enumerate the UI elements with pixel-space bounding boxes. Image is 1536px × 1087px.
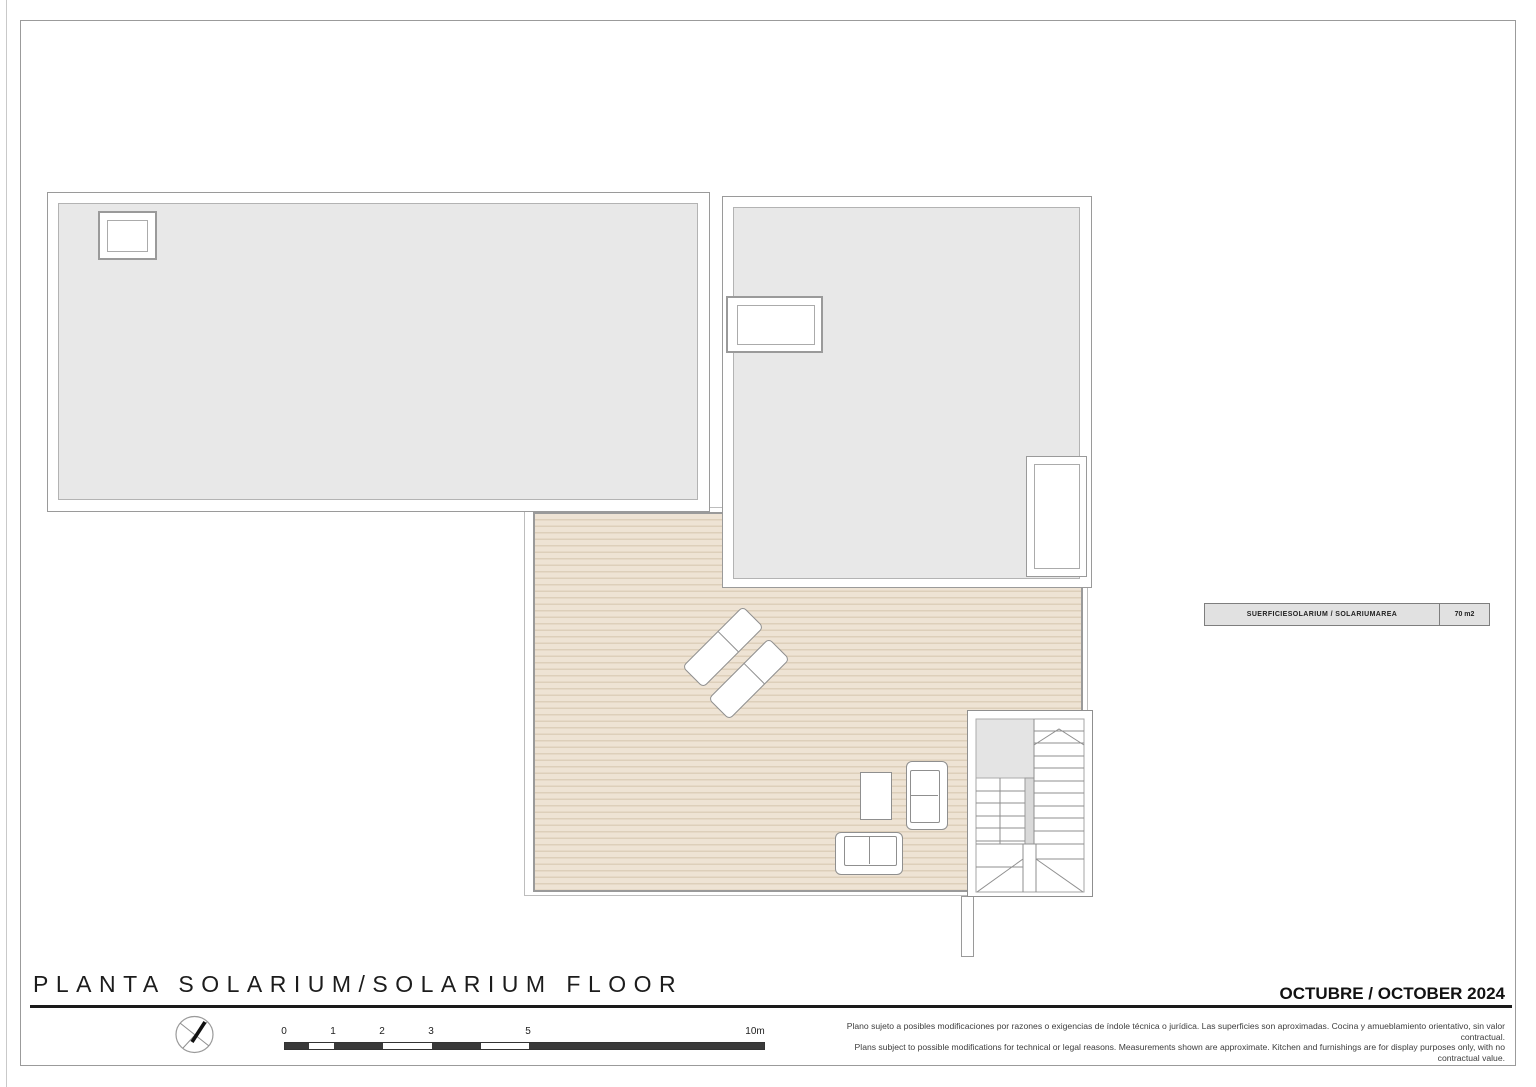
sheet-left-edge-line	[6, 0, 7, 1087]
scale-segment	[432, 1043, 481, 1049]
title-underline	[30, 1005, 1512, 1008]
lounger-backrest-line	[718, 632, 739, 653]
scale-segment	[481, 1043, 529, 1049]
scale-segment	[285, 1043, 309, 1049]
scale-label-1: 1	[330, 1026, 336, 1037]
scale-segment	[309, 1043, 334, 1049]
scale-label-10m: 10m	[745, 1026, 764, 1037]
sofa-cushions	[844, 836, 897, 866]
sofa-cushion-divider	[910, 795, 938, 796]
plan-date: OCTUBRE / OCTOBER 2024	[1280, 984, 1505, 1004]
scale-label-5: 5	[525, 1026, 531, 1037]
scale-segment	[334, 1043, 383, 1049]
staircase-drawing	[968, 711, 1094, 898]
sofa-two-seat-right	[906, 761, 948, 830]
skylight-right-inner	[737, 305, 815, 345]
chimney-shaft-inner	[1034, 464, 1080, 569]
scale-label-3: 3	[428, 1026, 434, 1037]
stair-center-wall	[1025, 778, 1034, 844]
scale-label-0: 0	[281, 1026, 287, 1037]
skylight-left-inner	[107, 220, 148, 252]
scale-segment	[529, 1043, 764, 1049]
staircase	[967, 710, 1093, 897]
scale-segment	[383, 1043, 432, 1049]
lounger-backrest-line	[744, 664, 765, 685]
sofa-cushions	[910, 770, 940, 823]
sofa-cushion-divider	[869, 836, 870, 864]
scale-bar-labels: 0 1 2 3 5 10m	[0, 1026, 1536, 1038]
stair-wall-stub	[961, 896, 974, 957]
area-table: SUERFICIESOLARIUM / SOLARIUMAREA 70 m2	[1204, 603, 1490, 626]
disclaimer-line-en: Plans subject to possible modifications …	[825, 1042, 1505, 1063]
area-table-label: SUERFICIESOLARIUM / SOLARIUMAREA	[1205, 604, 1440, 625]
stair-landing	[976, 719, 1034, 778]
plan-title: PLANTA SOLARIUM/SOLARIUM FLOOR	[33, 971, 683, 998]
side-table	[860, 772, 892, 820]
scale-label-2: 2	[379, 1026, 385, 1037]
area-table-value: 70 m2	[1440, 604, 1489, 625]
scale-bar	[284, 1042, 765, 1050]
plan-sheet: SUERFICIESOLARIUM / SOLARIUMAREA 70 m2 P…	[0, 0, 1536, 1087]
sofa-two-seat-bottom	[835, 832, 903, 875]
